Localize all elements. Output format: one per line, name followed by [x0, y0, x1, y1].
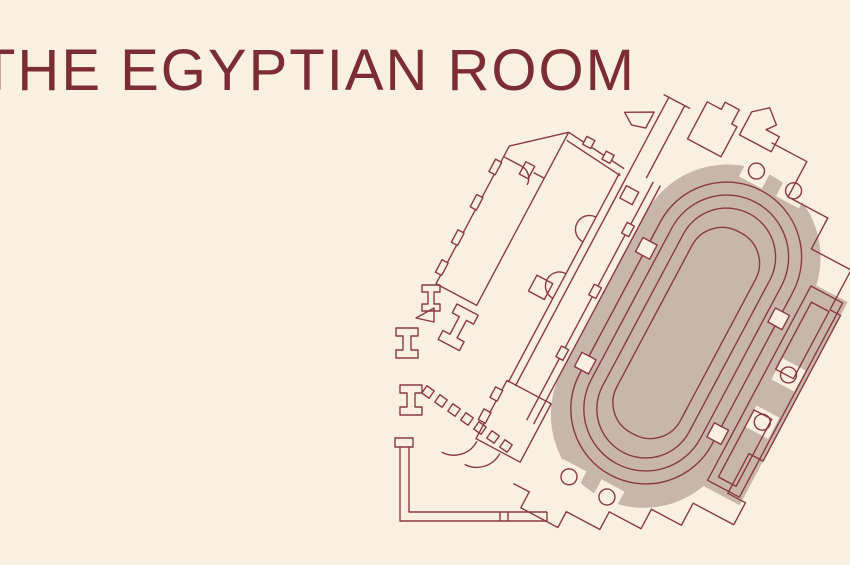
vestibule [442, 369, 551, 487]
top-corridor [621, 94, 690, 188]
gallery-wing [431, 108, 569, 305]
forecourt-piers [396, 285, 440, 415]
floor-plan [0, 0, 850, 565]
forecourt [395, 285, 547, 521]
